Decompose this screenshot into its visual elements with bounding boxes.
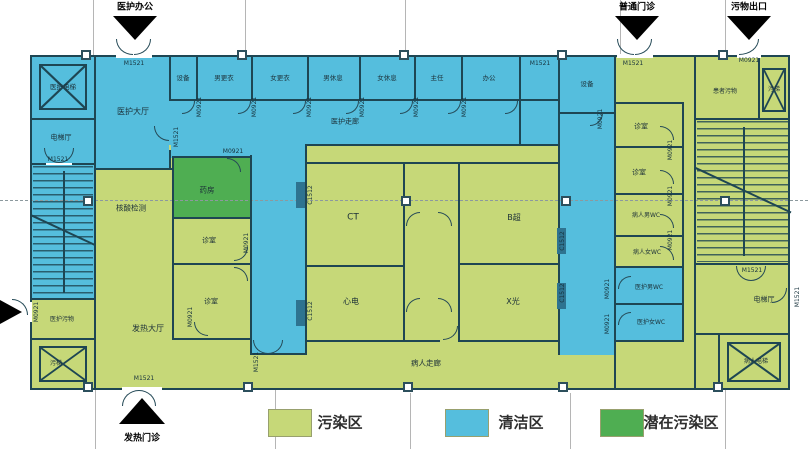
pass-window — [296, 300, 305, 326]
room-label-staff-men-wc: 医护男WC — [635, 285, 663, 291]
door-opening — [30, 302, 32, 322]
entrance-label-staff-office: 医护办公 — [117, 4, 153, 13]
door-label: M1521 — [48, 157, 68, 163]
room-label-waste-elevator-bl: 污梯 — [50, 361, 62, 367]
wall — [196, 57, 198, 100]
door-opening — [46, 163, 72, 165]
door-swing — [12, 299, 28, 315]
wall — [459, 263, 559, 265]
room-label-consult-3: 诊室 — [634, 124, 648, 131]
room-label-nucleic-acid-test: 核酸检测 — [116, 204, 146, 212]
wall — [250, 155, 252, 355]
wall — [458, 340, 560, 342]
entrance-label-fever-clinic: 发热门诊 — [124, 435, 160, 444]
window-label: C1512 — [560, 283, 566, 302]
room-label-staff-elevator: 医护电梯 — [50, 84, 76, 91]
wall — [172, 157, 174, 340]
column-marker — [720, 196, 730, 206]
column-marker — [237, 50, 247, 60]
wall — [758, 57, 760, 120]
wall — [694, 55, 696, 390]
door-label: M1521 — [795, 287, 801, 307]
wall — [169, 150, 171, 170]
door-label: M0921 — [188, 307, 194, 327]
door-label: M0921 — [307, 97, 313, 117]
wall — [305, 144, 560, 146]
wall — [403, 163, 405, 342]
column-marker — [561, 196, 571, 206]
room-label-director: 主任 — [431, 75, 444, 82]
room-label-pharmacy: 药房 — [200, 186, 215, 194]
room-label-waste-elevator-tr: 污梯 — [768, 87, 780, 93]
door-label: M1521 — [742, 268, 762, 274]
room-label-consult-4: 诊室 — [632, 170, 646, 177]
wall — [614, 340, 684, 342]
wall — [169, 57, 171, 100]
entrance-label-waste-exit: 污物出口 — [731, 4, 767, 13]
wall — [414, 57, 416, 100]
room-label-patient-corridor: 病人走廊 — [411, 359, 441, 367]
room-label-xray: X光 — [506, 298, 519, 306]
wall — [172, 217, 252, 219]
grid-line — [410, 393, 411, 449]
door-swing — [134, 39, 151, 55]
room-label-staff-corridor: 医护走廊 — [331, 119, 359, 126]
door-label: M0921 — [34, 302, 40, 322]
wall — [30, 118, 95, 120]
wall — [307, 57, 309, 100]
door-swing — [739, 39, 759, 55]
door-label: M0921 — [197, 97, 203, 117]
grid-line — [570, 393, 571, 449]
door-label: M0921 — [668, 186, 674, 206]
grid-line — [93, 0, 94, 55]
door-label: M0921 — [739, 58, 759, 64]
pass-window — [296, 182, 305, 208]
column-marker — [403, 382, 413, 392]
column-marker — [557, 50, 567, 60]
door-label: M0921 — [598, 109, 604, 129]
wall — [614, 266, 684, 268]
column-marker — [81, 50, 91, 60]
wall — [519, 57, 521, 145]
wall — [461, 57, 463, 100]
door-label: M0921 — [605, 314, 611, 334]
room-label-fever-hall: 发热大厅 — [132, 325, 164, 333]
room-label-office: 办公 — [483, 75, 496, 82]
wall — [404, 340, 440, 342]
door-label: M1521 — [174, 127, 180, 147]
room-label-patient-men-wc: 病人男WC — [632, 213, 660, 219]
door-label: M0921 — [244, 233, 250, 253]
room-label-ct: CT — [347, 214, 359, 223]
room-label-elevator-hall-right: 电梯厅 — [754, 297, 775, 304]
wall — [614, 102, 684, 104]
room-label-women-rest: 女休息 — [377, 75, 397, 82]
room-label-staff-hall: 医护大厅 — [117, 108, 149, 116]
wall — [694, 333, 790, 335]
room-label-consult-1: 诊室 — [202, 238, 216, 245]
grid-line — [725, 0, 726, 55]
wall — [30, 338, 95, 340]
column-marker — [83, 382, 93, 392]
wall — [682, 102, 684, 342]
door-label: M1521 — [254, 352, 260, 372]
door-label: M1521 — [134, 376, 154, 382]
grid-line — [245, 0, 246, 55]
grid-line — [95, 390, 96, 449]
room-label-equipment-1: 设备 — [177, 75, 190, 82]
room-label-men-changing: 男更衣 — [214, 75, 234, 82]
wall — [307, 265, 404, 267]
staircase-left — [33, 166, 93, 298]
wall — [718, 335, 720, 388]
legend-swatch-clean — [445, 409, 489, 437]
wall — [172, 263, 252, 265]
wall — [694, 263, 790, 265]
room-label-consult-2: 诊室 — [204, 299, 218, 306]
door-label: M1521 — [124, 61, 144, 67]
room-label-staff-waste: 医护污物 — [50, 317, 74, 323]
grid-line — [725, 390, 726, 449]
column-marker — [399, 50, 409, 60]
wall — [558, 112, 616, 114]
room-label-men-rest: 男休息 — [323, 75, 343, 82]
staircase-right — [697, 121, 788, 262]
wall — [30, 298, 95, 300]
wall — [172, 338, 252, 340]
door-swing — [139, 390, 156, 406]
door-label: M1521 — [530, 61, 550, 67]
legend-label-contaminated: 污染区 — [317, 416, 362, 431]
door-label: M0921 — [462, 97, 468, 117]
room-label-elevator-hall-left: 电梯厅 — [51, 135, 72, 142]
door-label: M0921 — [360, 97, 366, 117]
entrance-arrow-staff-office — [113, 16, 157, 40]
legend-label-potentially-contaminated: 潜在污染区 — [643, 416, 718, 431]
wall — [94, 168, 174, 170]
door-swing — [116, 39, 133, 55]
room-label-patient-women-wc: 病人女WC — [633, 250, 661, 256]
entrance-arrow-waste-exit — [727, 16, 771, 40]
room-label-patient-elevator: 病人电梯 — [744, 359, 768, 365]
waste-elevator-shaft-icon — [39, 346, 87, 382]
door-label: M1521 — [623, 61, 643, 67]
wall — [251, 57, 253, 100]
column-marker — [718, 50, 728, 60]
door-label: M0921 — [252, 97, 258, 117]
wall — [614, 303, 684, 305]
wall — [305, 144, 307, 355]
wall — [458, 163, 460, 342]
wall — [307, 340, 405, 342]
wall — [558, 55, 560, 355]
zone-clean-hall-ext — [95, 145, 169, 168]
column-marker — [558, 382, 568, 392]
door-label: M0921 — [605, 279, 611, 299]
legend-swatch-contaminated — [268, 409, 312, 437]
door-label: M0921 — [668, 140, 674, 160]
column-marker — [83, 196, 93, 206]
room-label-women-changing: 女更衣 — [270, 75, 290, 82]
column-marker — [713, 382, 723, 392]
room-label-staff-women-wc: 医护女WC — [637, 320, 665, 326]
wall — [694, 118, 790, 120]
wall — [172, 156, 252, 158]
door-label: M0921 — [223, 149, 243, 155]
column-marker — [243, 382, 253, 392]
room-label-ecg: 心电 — [343, 298, 359, 306]
wall — [788, 55, 790, 390]
grid-line — [405, 0, 406, 55]
door-label: M0921 — [668, 230, 674, 250]
wall — [307, 162, 560, 164]
door-swing — [635, 39, 652, 55]
legend-swatch-potentially-contaminated — [600, 409, 644, 437]
column-marker — [401, 196, 411, 206]
door-label: M0921 — [414, 97, 420, 117]
legend-label-clean: 清洁区 — [498, 416, 543, 431]
window-label: C1512 — [308, 185, 314, 204]
room-label-equipment-2: 设备 — [581, 81, 594, 88]
room-label-patient-waste: 患者污物 — [713, 89, 737, 95]
entrance-arrow-general-outpatient — [615, 16, 659, 40]
floor-plan: 医护电梯 电梯厅 医护大厅 设备 男更衣 女更衣 男休息 女休息 主任 办公 设… — [0, 0, 808, 449]
room-label-ultrasound: B超 — [507, 214, 521, 222]
wall — [359, 57, 361, 100]
entrance-label-general-outpatient: 普通门诊 — [619, 4, 655, 13]
window-label: C1512 — [560, 231, 566, 250]
door-swing — [122, 390, 139, 406]
window-label: C1512 — [308, 301, 314, 320]
